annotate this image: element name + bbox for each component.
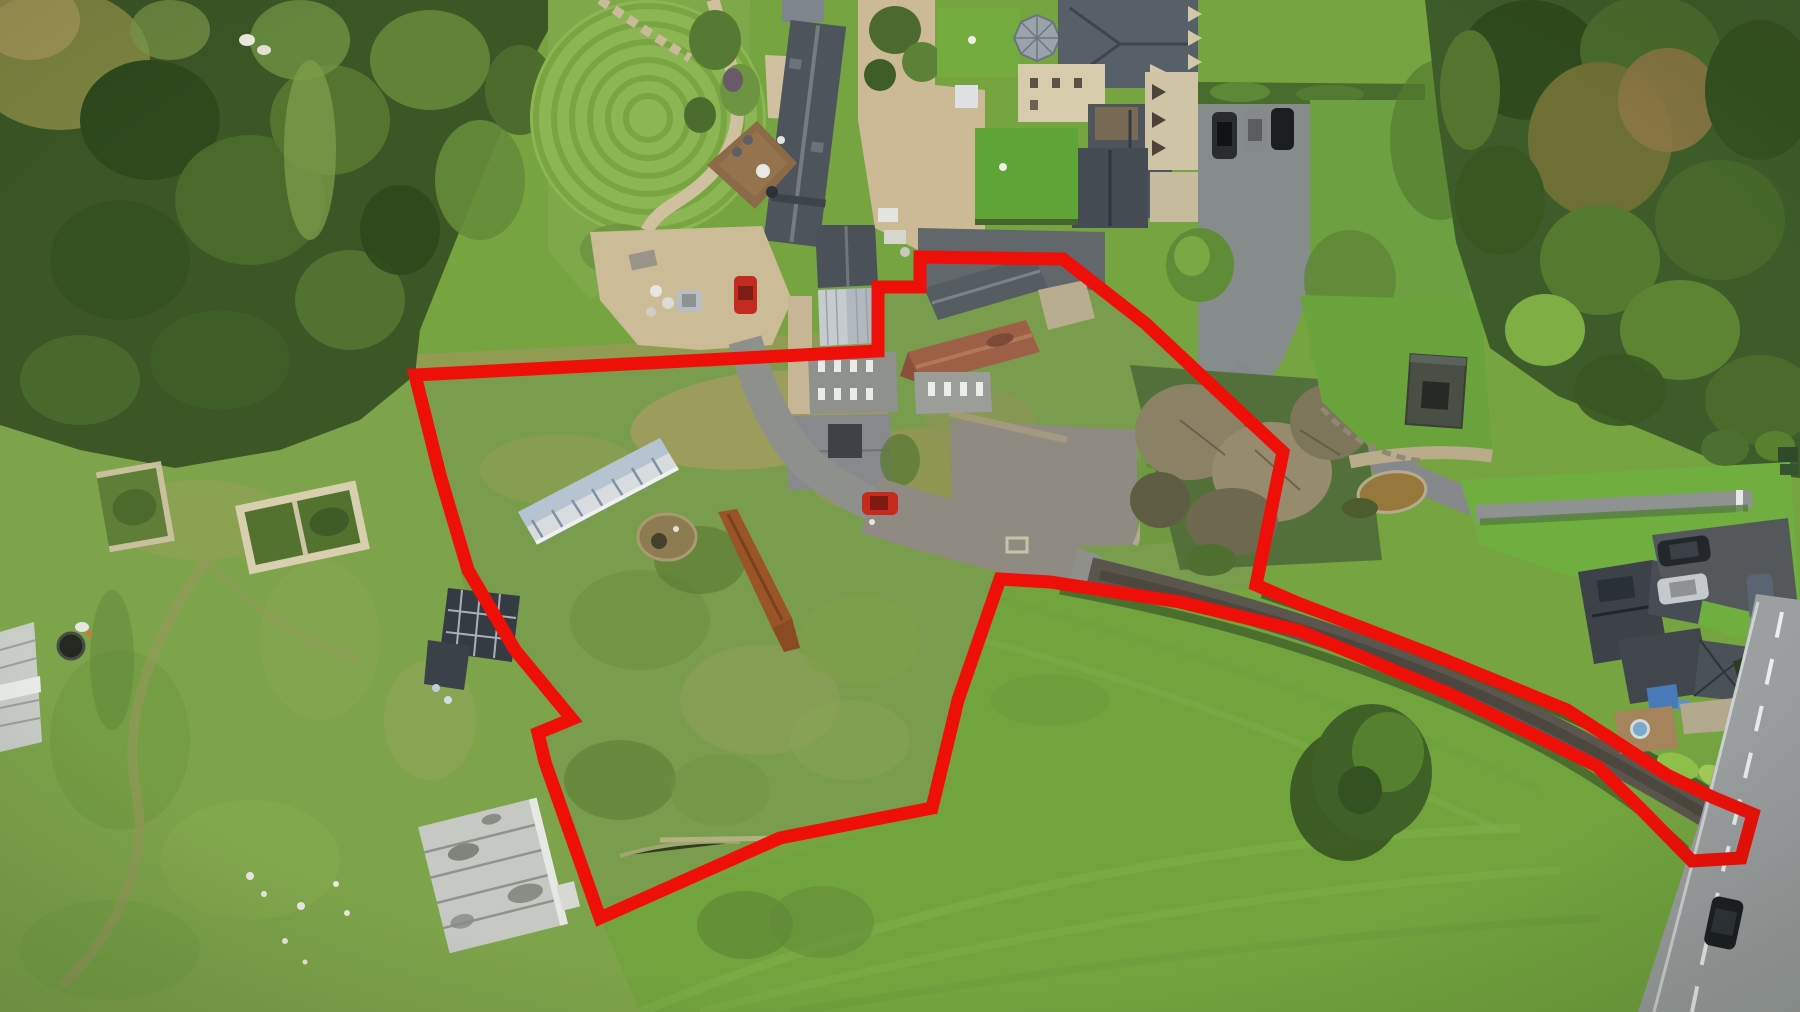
photo-vignette [0,0,1800,1012]
aerial-photo [0,0,1800,1012]
aerial-photo-canvas [0,0,1800,1012]
